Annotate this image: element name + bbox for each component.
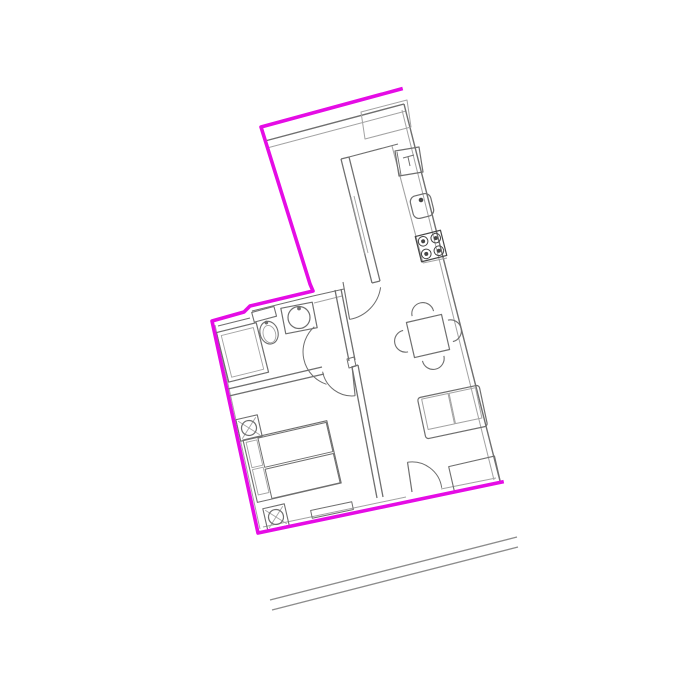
bedroom-living-wall-2 [358,365,383,497]
shower-inner [221,328,263,378]
dining-table [406,314,449,357]
bedroom-living-wall-1 [352,367,377,498]
bathroom-top-wall-east [313,289,344,296]
chair-east [448,318,464,342]
bath-sink-faucet [298,307,301,310]
stove-burner-dot-3 [424,252,428,256]
floor-plan-screenshot [0,0,700,700]
bathroom-east-wall-1 [335,290,349,361]
road-line-outer [270,537,517,600]
boiler-symbol-2 [408,157,410,166]
floor-plan-drawing [0,0,700,700]
toilet-tank [252,307,277,323]
entry-door-arc [408,462,442,488]
kitchen-tall-unit [361,100,411,139]
chair-north [410,300,434,316]
chair-west [392,330,408,354]
bathroom-east-wall-2 [341,289,355,360]
sofa-cushion-1 [422,394,455,430]
stove [415,230,447,262]
kitchen-counter-back-line [349,144,398,157]
kitchen-sink-faucet [419,198,423,202]
bedroom-door-arc [323,372,356,396]
sofa-cushion-2 [449,388,482,424]
kitchen-wall-cap-top [341,157,349,159]
hall-door-arc [350,287,381,319]
bed-mattress-2 [265,454,340,499]
stove-burner-dot-4 [437,249,441,253]
road-line-inner [272,547,518,610]
stove-burner-dot-2 [434,236,438,240]
top-wall-inner-dark [265,104,404,141]
right-wall-inner [402,110,494,480]
chair-south [422,356,446,372]
kitchen-wall-hatch-1 [351,197,365,254]
kitchen-wall-east [349,157,380,281]
top-wall-inner-light [267,111,406,148]
stove-burner-dot-1 [421,239,425,243]
kitchen-wall-cap-bottom [372,281,380,283]
kitchen-sink [409,192,435,219]
entry-door-leaf [408,462,413,492]
bed-mattress-1 [258,422,333,467]
